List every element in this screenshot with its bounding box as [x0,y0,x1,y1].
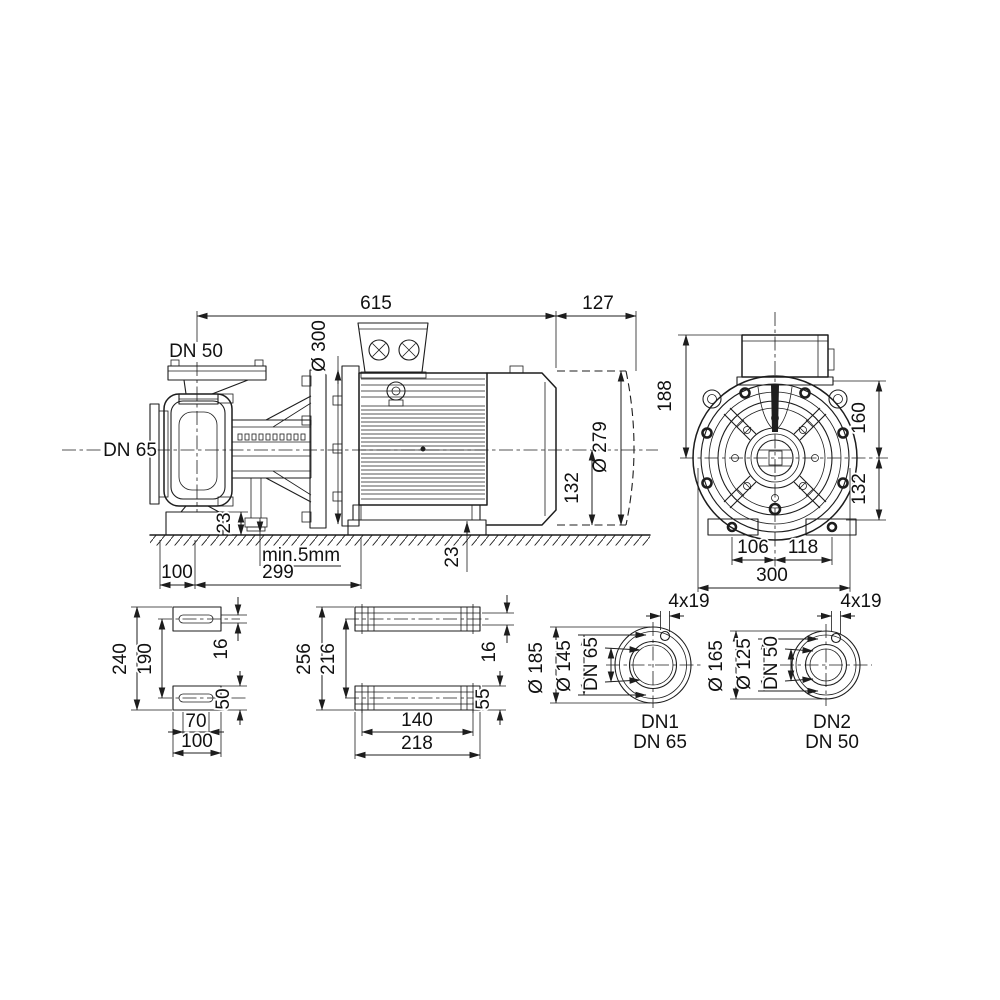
dim-mf-overall-width: 218 [401,733,433,754]
end-view: 188 160 132 106 118 300 [655,312,888,592]
dim-dn2-outer-dia: Ø 165 [706,640,727,692]
support-foot [245,518,267,527]
dim-mf-slot-width: 16 [479,641,500,662]
dim-mf-hole-spacing-x: 140 [401,710,433,731]
flange-dn2-view: 4x19 Ø 165 Ø 125 DN 50 DN2 DN 50 [706,591,882,753]
dim-pf-hole-spacing: 190 [135,643,156,675]
dim-box-to-center: 188 [655,380,676,412]
label-dn2-name: DN2 [813,712,851,733]
end-view-terminal-box [737,335,834,385]
top-rib [771,385,779,432]
dim-overall-width: 300 [756,565,788,586]
dim-pf-overall-length: 240 [110,643,131,675]
motor-rear [487,373,556,525]
dim-length-total: 615 [360,293,392,314]
dim-dn2-nominal: DN 50 [761,636,782,690]
dim-center-to-foot: 132 [849,473,870,505]
dim-dn1-outer-dia: Ø 185 [526,642,547,694]
label-dn2-size: DN 50 [805,732,859,753]
flange-dn1-view: 4x19 Ø 185 Ø 145 DN 65 DN1 DN 65 [526,591,710,753]
dim-motor-dia: Ø 279 [590,421,611,473]
dim-foot-offset: 100 [161,562,193,583]
pump-dimensional-drawing: 615 127 DN 50 DN 65 Ø 300 Ø 279 132 23 2… [0,0,1000,1000]
dim-pf-slot-width: 16 [211,638,232,659]
dim-shaft-height-side: 132 [562,472,583,504]
dim-dn1-bolt-circle: Ø 145 [554,640,575,692]
motor-foundation-pad [348,520,486,535]
flange-dn1-dimensions: 4x19 Ø 185 Ø 145 DN 65 [526,591,710,703]
dim-foot-right: 118 [788,537,818,558]
dim-dn1-nominal: DN 65 [581,637,602,691]
dim-mf-foot-width: 55 [473,688,494,709]
label-dn1-name: DN1 [641,712,679,733]
pump-foot-plan: 240 190 16 50 70 100 [110,597,247,757]
dim-flange-dia: Ø 300 [309,320,330,372]
label-discharge: DN 50 [169,341,223,362]
motor-flange [302,366,359,528]
dim-pad-height: 23 [442,546,463,567]
ground-hatch [150,536,650,546]
dim-pf-slot-length: 70 [185,711,206,732]
side-view: 615 127 DN 50 DN 65 Ø 300 Ø 279 132 23 2… [62,293,658,589]
terminal-box [358,323,428,378]
dim-mf-overall-length: 256 [294,643,315,675]
dim-length-rear: 127 [582,293,614,314]
pump-foot-dimensions: 240 190 16 50 70 100 [110,597,247,757]
end-view-dimensions: 188 160 132 106 118 300 [655,335,886,592]
label-dn1-size: DN 65 [633,732,687,753]
pump-foot [181,506,219,512]
label-suction: DN 65 [103,440,157,461]
dim-flange-to-center: 160 [849,402,870,434]
dim-pf-foot-width: 50 [213,688,234,709]
dim-pf-overall-width: 100 [181,731,213,752]
lantern [232,396,311,531]
motor-feet [353,505,480,520]
eyebolt-icon [387,382,405,406]
dim-dn2-bolt-holes: 4x19 [840,591,881,612]
dim-foot-span: 299 [262,562,294,583]
motor-foot-dimensions: 256 216 16 55 140 218 [294,595,514,759]
dim-dn2-bolt-circle: Ø 125 [734,638,755,690]
bolt-marks [362,604,473,713]
motor-fins [361,406,485,499]
dim-mf-hole-spacing: 216 [318,643,339,675]
dim-foot-block-height: 23 [214,512,235,533]
dn1-bolt-hole [661,632,670,641]
dim-dn1-bolt-holes: 4x19 [668,591,709,612]
vent-slots [238,434,305,440]
dim-foot-left: 106 [737,537,769,558]
drawing-canvas: 615 127 DN 50 DN 65 Ø 300 Ø 279 132 23 2… [0,0,1000,1000]
motor-foot-plan: 256 216 16 55 140 218 [294,595,514,759]
